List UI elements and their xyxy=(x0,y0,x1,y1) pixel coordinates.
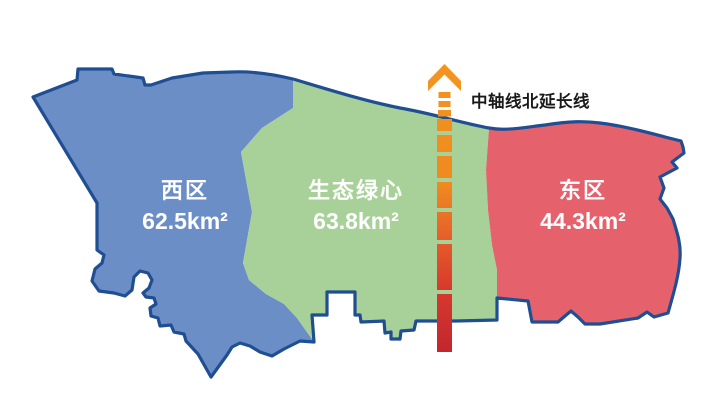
axis-dash xyxy=(439,92,451,98)
axis-arrow-icon xyxy=(428,64,461,91)
east-region xyxy=(486,122,684,324)
district-map xyxy=(0,0,718,407)
axis-dash xyxy=(437,119,452,131)
axis-dash xyxy=(437,212,452,240)
axis-dash xyxy=(437,294,452,352)
axis-dash xyxy=(437,135,452,152)
axis-dash xyxy=(438,110,451,117)
infographic-canvas: 西区 62.5km² 生态绿心 63.8km² 东区 44.3km² 中轴线北延… xyxy=(0,0,718,407)
axis-label: 中轴线北延长线 xyxy=(471,88,590,112)
axis-dash xyxy=(439,101,451,107)
axis-dash xyxy=(437,182,452,208)
axis-dash xyxy=(437,156,452,178)
axis-dash xyxy=(437,244,452,290)
